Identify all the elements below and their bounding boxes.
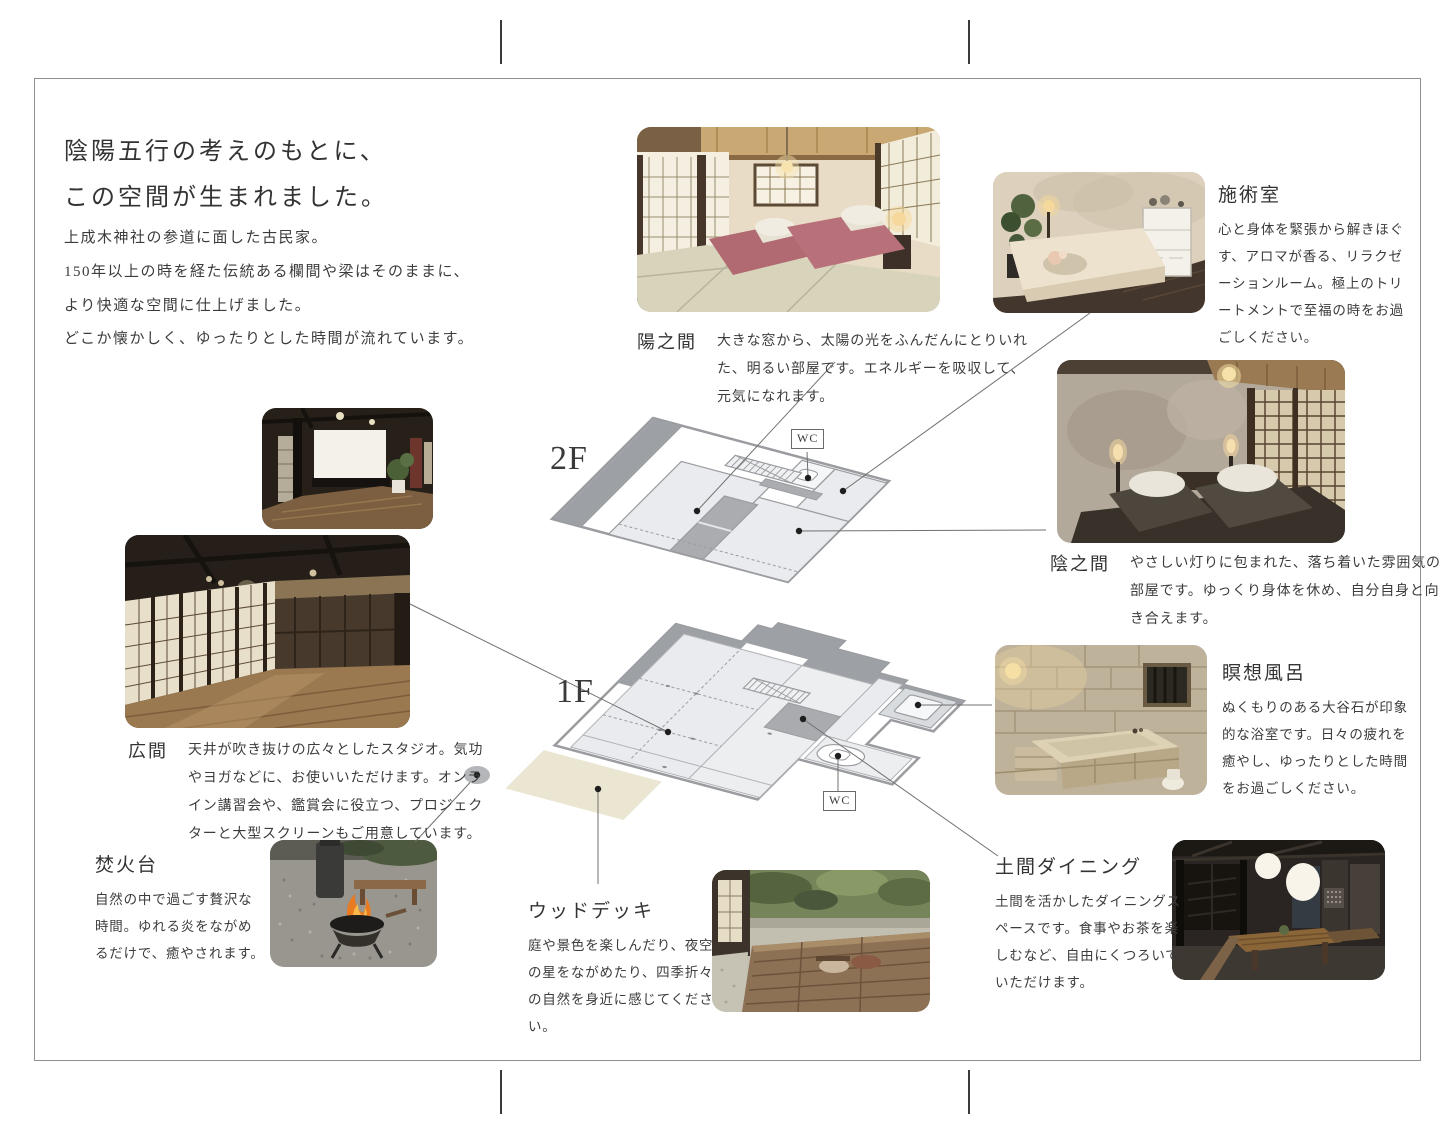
room-doma-dining: 土間ダイニング 土間を活かしたダイニングスペースです。食事やお茶を楽しむなど、自… xyxy=(995,852,1187,996)
room-takibidai-description: 自然の中で過ごす贅沢な時間。ゆれる炎をながめるだけで、癒やされます。 xyxy=(95,886,265,967)
room-hiroma-name: 広間 xyxy=(128,737,168,763)
room-kage-no-ma-description: やさしい灯りに包まれた、落ち着いた雰囲気の部屋です。ゆっくり身体を休め、自分自身… xyxy=(1130,550,1442,634)
room-sejutsu-description: 心と身体を緊張から解きほぐす、アロマが香る、リラクゼーションルーム。極上のトリー… xyxy=(1218,216,1414,351)
room-hiroma-description: 天井が吹き抜けの広々としたスタジオ。気功やヨガなどに、お使いいただけます。オンラ… xyxy=(188,737,486,849)
room-hi-no-ma: 陽之間 大きな窓から、太陽の光をふんだんにとりいれた、明るい部屋です。エネルギー… xyxy=(637,328,1029,412)
room-meiso-buro-description: ぬくもりのある大谷石が印象的な浴室です。日々の疲れを癒やし、ゆったりとした時間を… xyxy=(1222,694,1414,802)
room-wood-deck-description: 庭や景色を楽しんだり、夜空の星をながめたり、四季折々の自然を身近に感じてください… xyxy=(528,932,720,1040)
wc-label-2f: WC xyxy=(791,429,824,449)
floor-2f-label: 2F xyxy=(550,440,588,478)
room-kage-no-ma-name: 陰之間 xyxy=(1050,550,1110,576)
room-takibidai: 焚火台 自然の中で過ごす贅沢な時間。ゆれる炎をながめるだけで、癒やされます。 xyxy=(95,850,265,967)
room-meiso-buro: 瞑想風呂 ぬくもりのある大谷石が印象的な浴室です。日々の疲れを癒やし、ゆったりと… xyxy=(1222,658,1414,802)
brochure-page: 陰陽五行の考えのもとに、 この空間が生まれました。 上成木神社の参道に面した古民… xyxy=(0,0,1455,1125)
floor-1f-label: 1F xyxy=(556,673,594,711)
room-kage-no-ma: 陰之間 やさしい灯りに包まれた、落ち着いた雰囲気の部屋です。ゆっくり身体を休め、… xyxy=(1050,550,1442,634)
room-meiso-buro-name: 瞑想風呂 xyxy=(1222,658,1414,685)
room-wood-deck: ウッドデッキ 庭や景色を楽しんだり、夜空の星をながめたり、四季折々の自然を身近に… xyxy=(528,896,720,1040)
room-hi-no-ma-description: 大きな窓から、太陽の光をふんだんにとりいれた、明るい部屋です。エネルギーを吸収し… xyxy=(717,328,1029,412)
wc-label-1f: WC xyxy=(823,791,856,811)
room-sejutsu: 施術室 心と身体を緊張から解きほぐす、アロマが香る、リラクゼーションルーム。極上… xyxy=(1218,180,1414,351)
room-wood-deck-name: ウッドデッキ xyxy=(528,896,720,923)
room-hi-no-ma-name: 陽之間 xyxy=(637,328,697,354)
room-takibidai-name: 焚火台 xyxy=(95,850,265,877)
room-doma-dining-description: 土間を活かしたダイニングスペースです。食事やお茶を楽しむなど、自由にくつろいでい… xyxy=(995,888,1187,996)
room-sejutsu-name: 施術室 xyxy=(1218,180,1414,207)
room-doma-dining-name: 土間ダイニング xyxy=(995,852,1187,879)
room-hiroma: 広間 天井が吹き抜けの広々としたスタジオ。気功やヨガなどに、お使いいただけます。… xyxy=(128,737,486,849)
